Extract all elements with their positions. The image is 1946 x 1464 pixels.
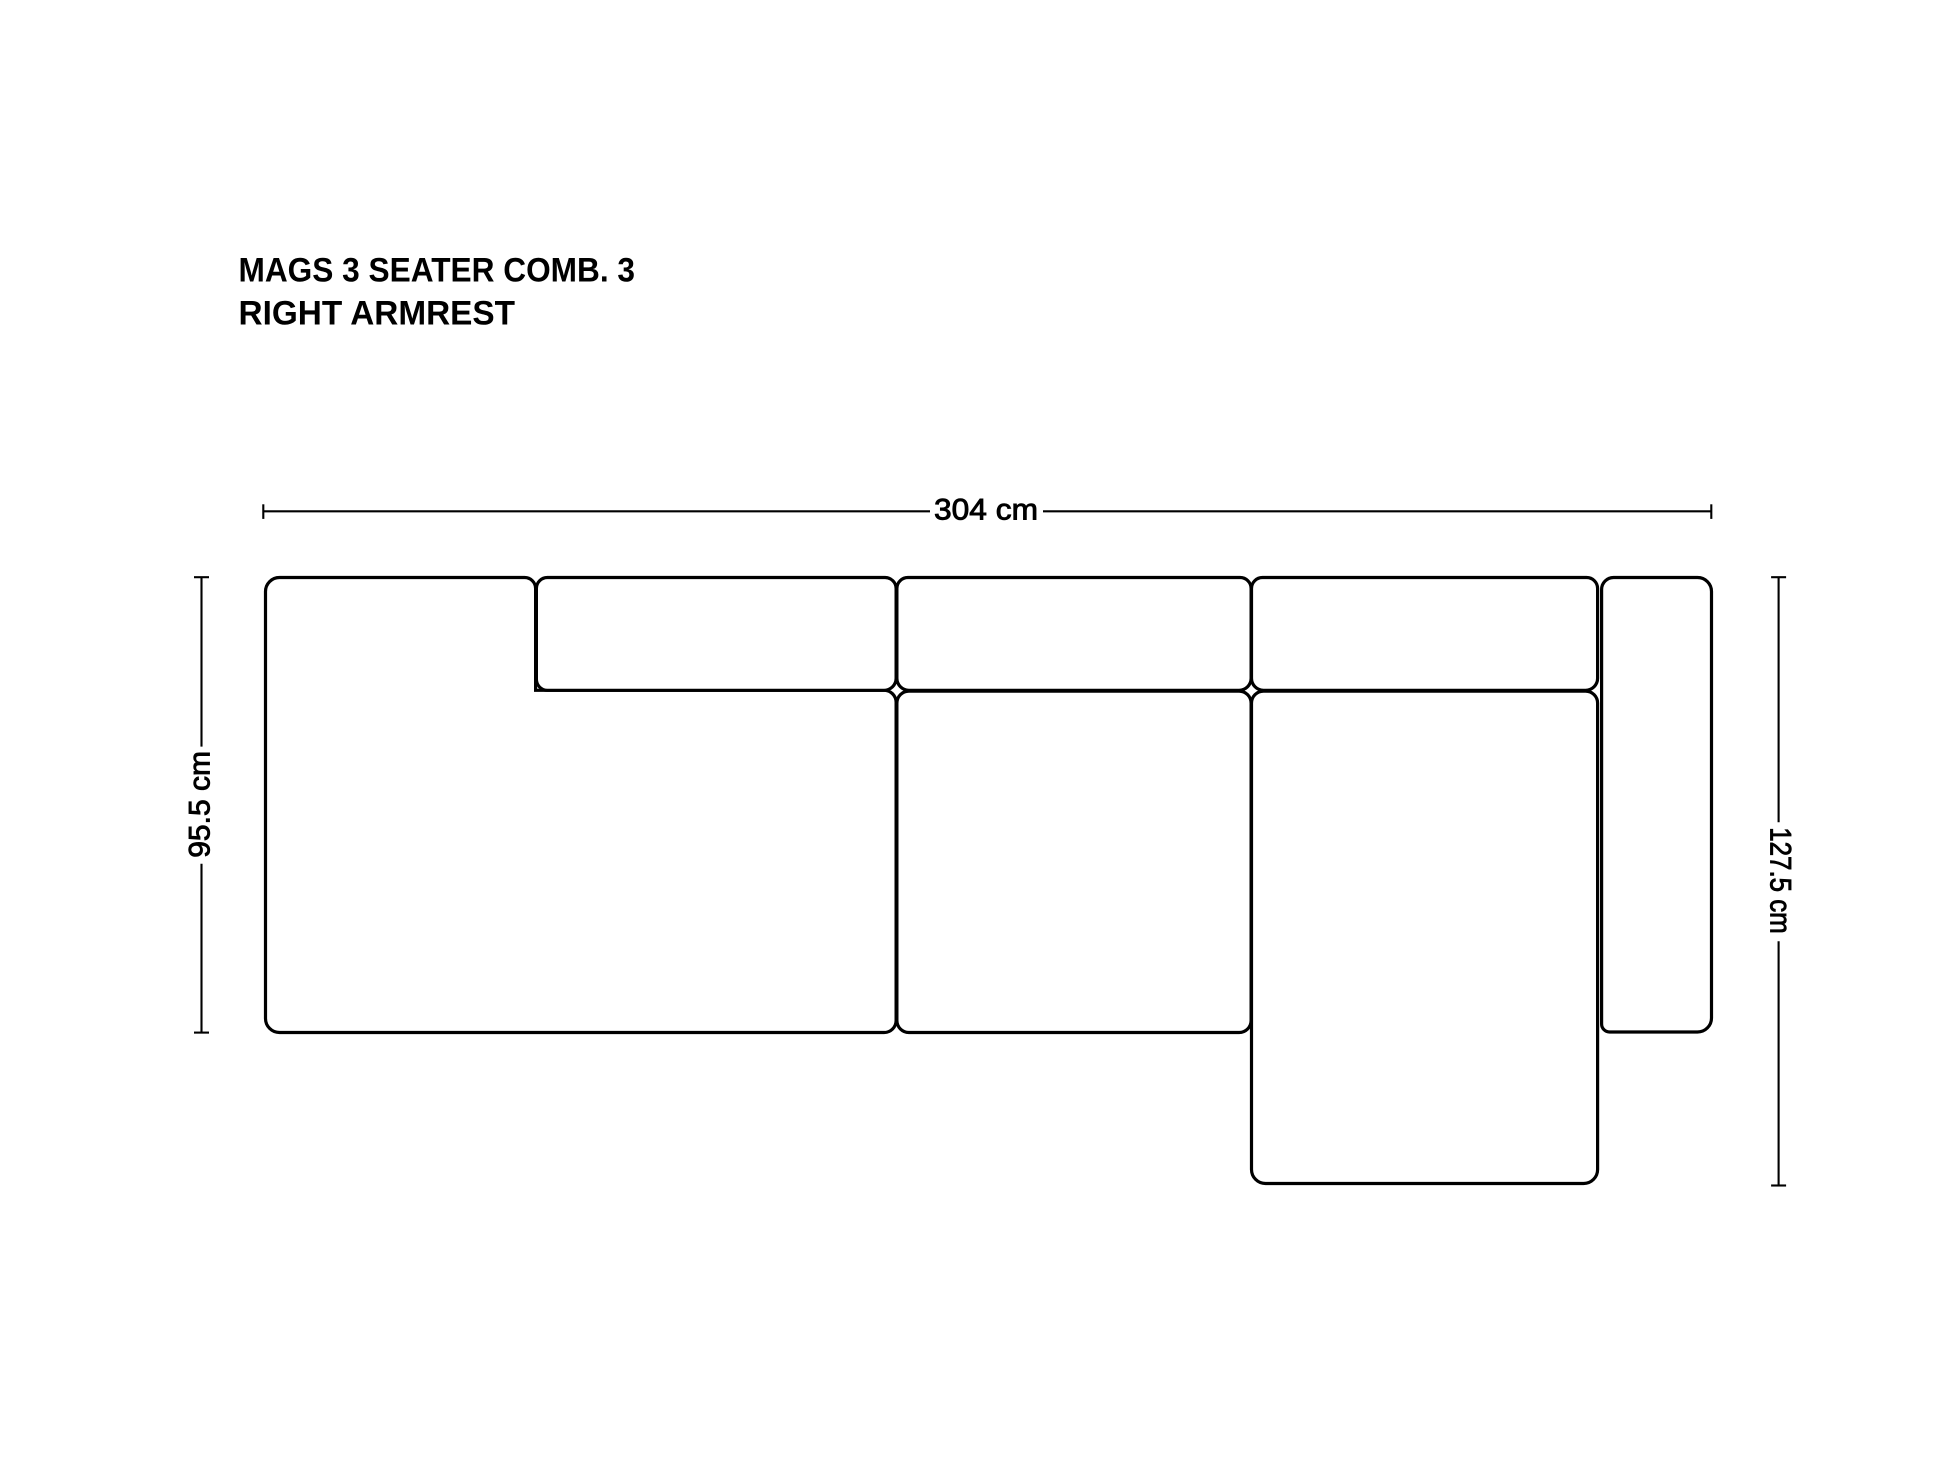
svg-text:95.5 cm: 95.5 cm [184, 751, 217, 858]
svg-text:RIGHT ARMREST: RIGHT ARMREST [239, 294, 516, 332]
svg-text:127.5 cm: 127.5 cm [1764, 827, 1797, 934]
svg-text:304 cm: 304 cm [934, 493, 1038, 526]
svg-text:MAGS 3 SEATER COMB. 3: MAGS 3 SEATER COMB. 3 [239, 252, 636, 290]
